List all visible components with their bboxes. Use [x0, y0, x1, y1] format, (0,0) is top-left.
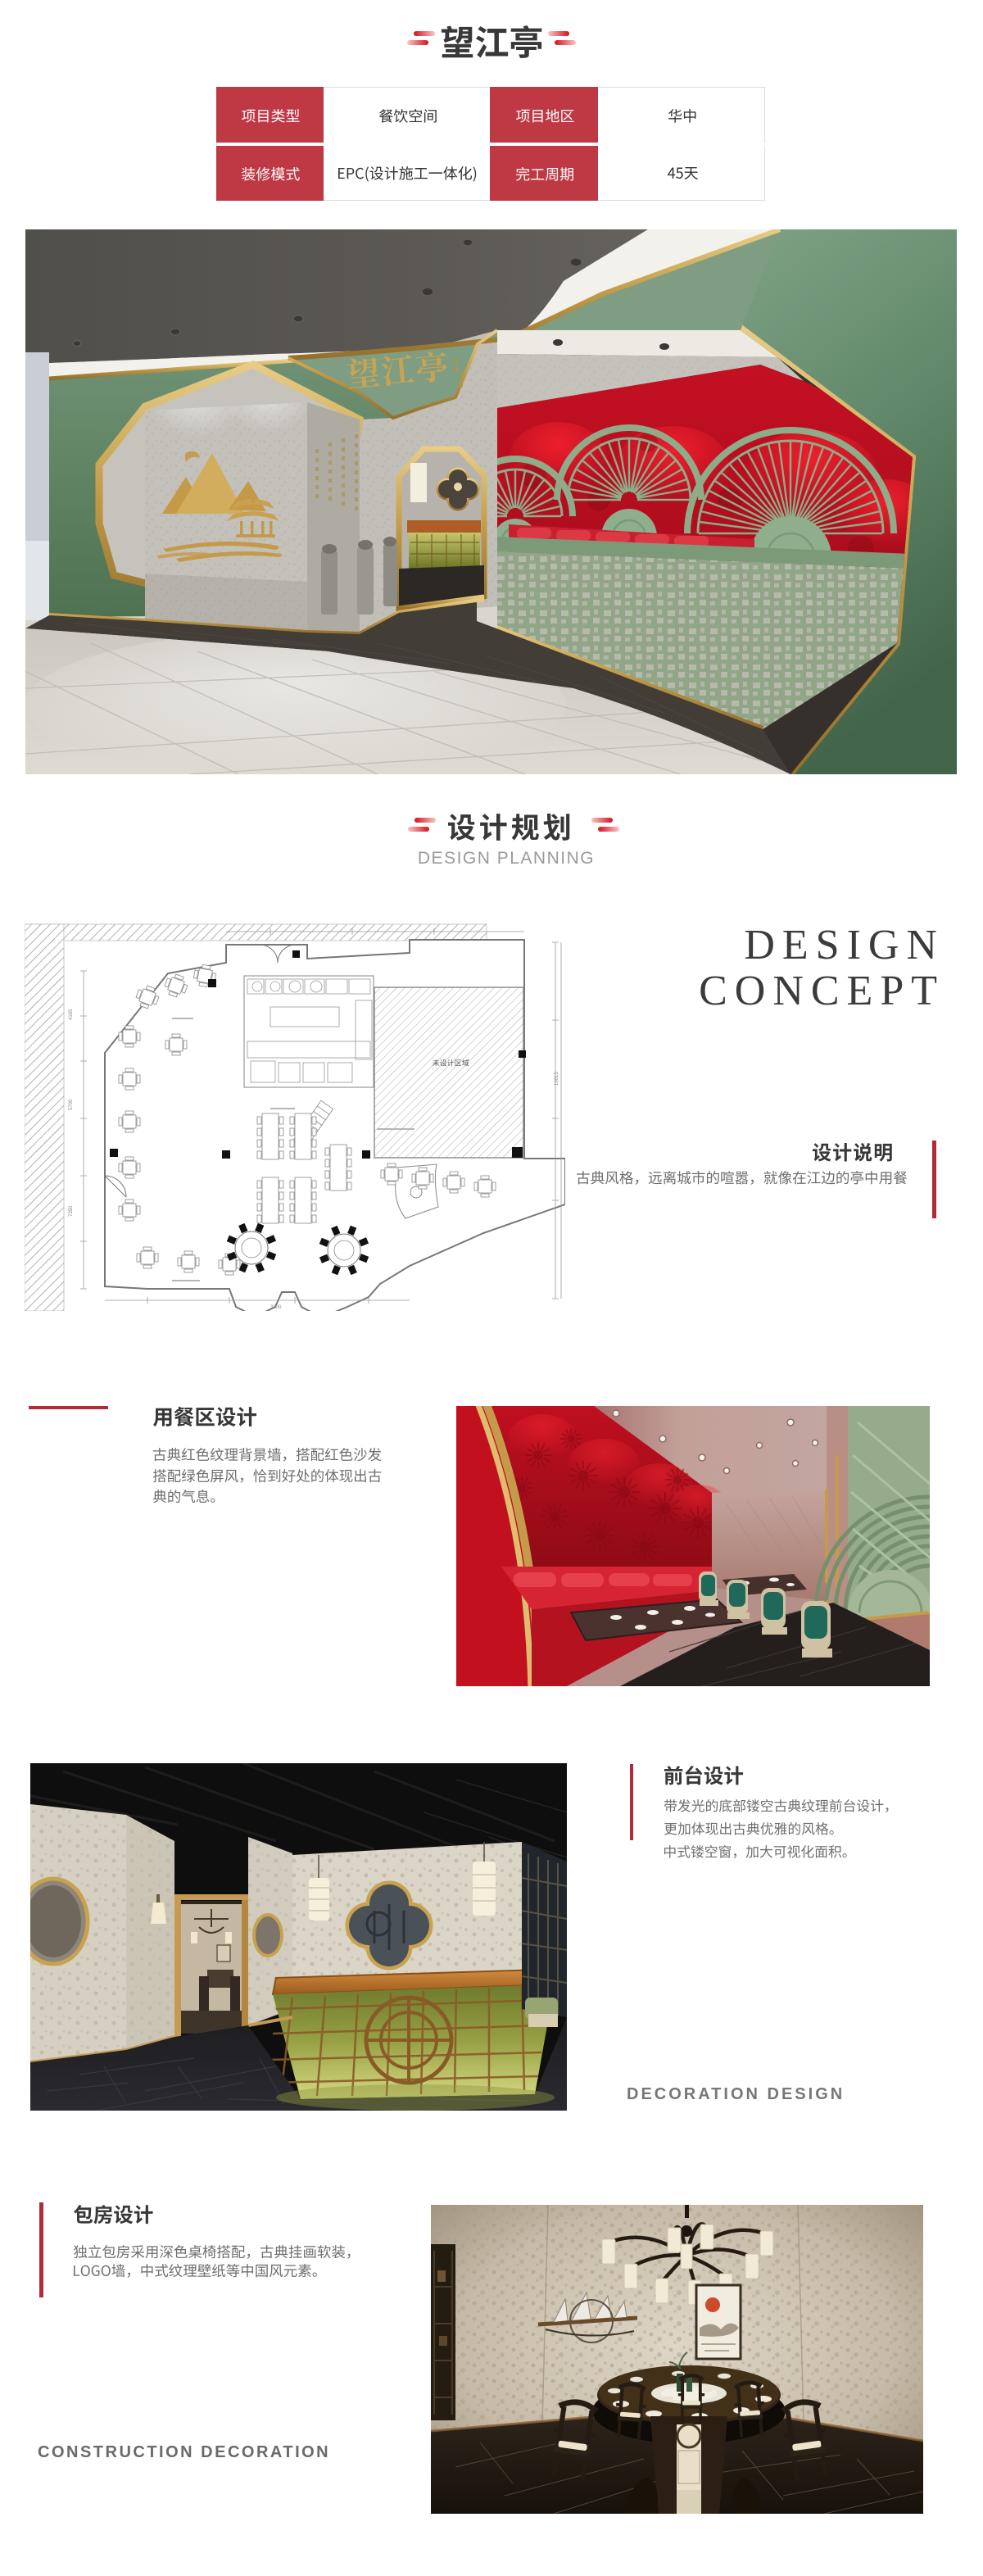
svg-text:5700: 5700 — [69, 1099, 74, 1110]
svg-text:7350: 7350 — [69, 1205, 74, 1217]
svg-text:4165: 4165 — [69, 1009, 74, 1020]
svg-text:3300: 3300 — [270, 1305, 282, 1310]
svg-text:10015: 10015 — [555, 1072, 559, 1086]
